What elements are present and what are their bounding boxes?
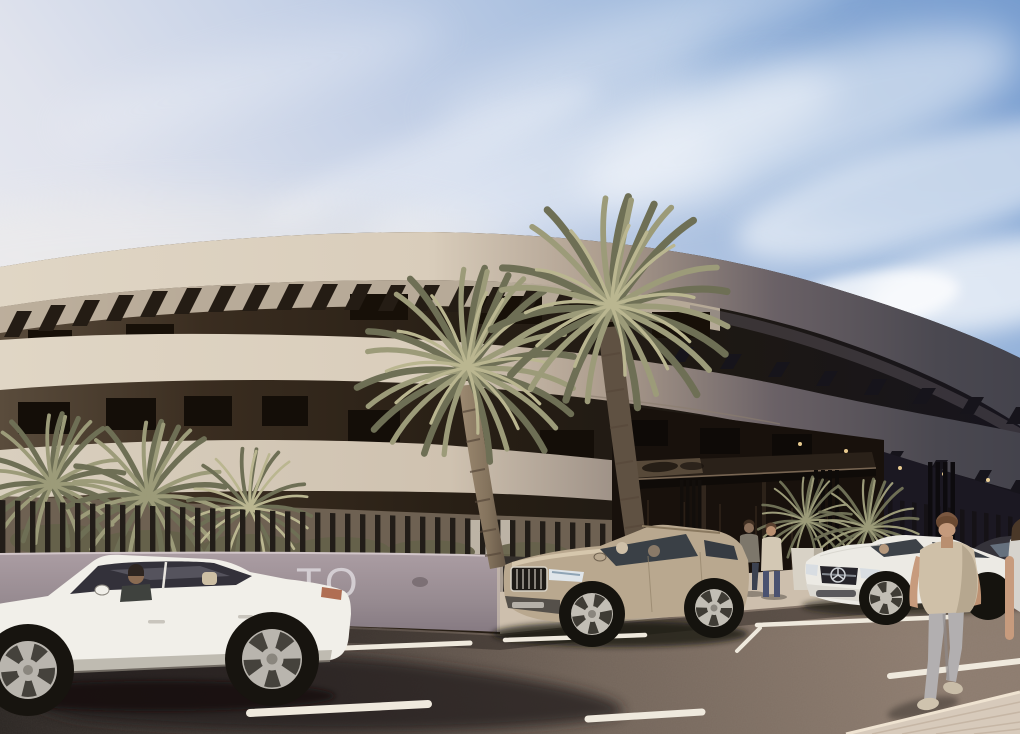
mercedes-front-wheel xyxy=(859,571,913,625)
hub xyxy=(588,610,596,618)
window xyxy=(184,396,232,426)
mercedes-headlight xyxy=(806,564,818,576)
suv-occupant-head xyxy=(648,545,660,557)
downlight-dot xyxy=(986,478,990,482)
mercedes-driver-head xyxy=(879,544,889,554)
window xyxy=(700,428,740,454)
person-jacket xyxy=(761,537,783,571)
side-mirror xyxy=(95,585,109,595)
downlight-dot xyxy=(798,442,802,446)
person-head xyxy=(766,526,776,536)
man-neck xyxy=(941,536,953,548)
hub xyxy=(23,665,33,675)
suv-front-wheel xyxy=(559,581,625,647)
scene-canvas: TO xyxy=(0,0,1020,734)
hub xyxy=(267,654,278,665)
bumper-intake xyxy=(816,590,856,597)
man-head xyxy=(939,523,956,537)
suv-grille xyxy=(511,567,547,591)
downlight-dot xyxy=(844,449,848,453)
person-leg xyxy=(774,571,780,597)
canopy-frond-shadow xyxy=(680,462,704,470)
door-handle xyxy=(148,620,165,624)
suv-occupant-head xyxy=(616,542,628,554)
render-image: TO xyxy=(0,0,1020,734)
person-leg xyxy=(763,571,769,597)
partial-person-arm xyxy=(1005,556,1014,640)
window xyxy=(262,396,308,426)
mercedes-grille xyxy=(820,566,858,585)
hub xyxy=(711,605,718,612)
sedan-rear-wheel xyxy=(225,612,319,706)
downlight-dot xyxy=(898,466,902,470)
window xyxy=(106,398,156,430)
person-head xyxy=(744,523,754,533)
suv-mirror xyxy=(594,553,606,561)
skid-plate xyxy=(512,602,544,608)
driver-torso xyxy=(120,584,152,602)
wall-vent xyxy=(412,577,428,587)
headrest xyxy=(202,572,217,585)
suv-rear-wheel xyxy=(684,578,744,638)
